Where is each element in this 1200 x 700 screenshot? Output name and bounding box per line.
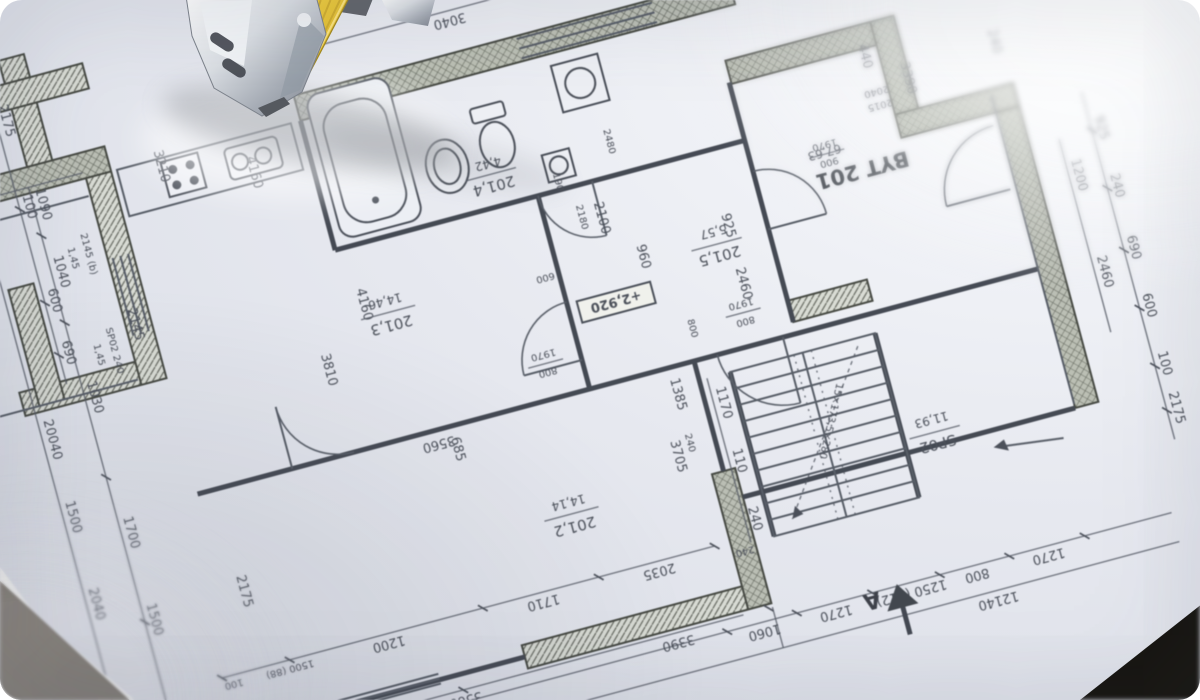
room-area-label: 14,46 — [367, 290, 404, 312]
dimension-label: 960 — [632, 243, 653, 271]
floor-plan: 15×173,5×280 — [0, 0, 1200, 700]
dimension-label: 20040 — [39, 418, 64, 462]
dimension-label: 1170 — [712, 385, 735, 421]
dimension-label: 1200 — [371, 632, 407, 655]
dimension-label: 2035 — [641, 559, 677, 582]
room-label: SP02 — [917, 430, 958, 457]
dimension-label: 3390 — [660, 631, 696, 654]
dimension-label: 1710 — [525, 590, 561, 613]
dimension-label: 1270 — [1031, 544, 1067, 567]
bathtub-icon — [304, 75, 423, 240]
dimension-label: 3040 — [432, 9, 468, 32]
dimension-lines — [0, 0, 1200, 700]
dimension-label: 2100 — [590, 200, 613, 236]
dimension-labels: 12140 1270 800 1250 (812) 1270 1060 3390… — [0, 0, 1200, 700]
room-label: 2145 (b) — [77, 232, 99, 276]
level-marker: +2,920 — [577, 282, 656, 323]
door-size-label: 1970 — [529, 346, 556, 363]
blueprint-photo: 15×173,5×280 — [0, 0, 1200, 700]
door-size-label: 800 — [735, 313, 756, 329]
kitchen-counter — [117, 123, 303, 216]
room-area-label: 11,93 — [913, 408, 950, 430]
dimension-label: 600 — [535, 269, 556, 285]
dimension-label: 1500 — [61, 499, 84, 535]
washing-machine-icon — [551, 54, 610, 113]
room-labels: 201,2 14,14 201,3 14,46 201,4 4,42 201,5… — [329, 51, 985, 588]
dimension-label: 1270 — [818, 601, 854, 624]
room-label: 201,5 — [697, 242, 743, 271]
dimension-label: 1385 — [666, 376, 689, 412]
dimension-label: 2460 — [1093, 254, 1116, 290]
dimension-label: 2175 — [1165, 390, 1188, 426]
dimension-label: 685 — [447, 435, 468, 463]
dimension-label: 240 — [984, 28, 1005, 56]
dimension-label: 100 — [223, 676, 244, 692]
dimension-label: 2175 — [232, 573, 255, 609]
dimension-label: 1200 — [1067, 157, 1090, 193]
room-label: 201,2 — [552, 512, 598, 541]
sink-icon — [420, 135, 475, 198]
dimension-label: 1500 — [143, 602, 166, 638]
room-area-label: 4,42 — [473, 153, 502, 173]
door-size-label: 800 — [537, 364, 558, 380]
room-label: SP02 240 — [103, 326, 126, 375]
dimension-label: 800 — [684, 318, 700, 339]
dimension-label: 1700 — [119, 515, 142, 551]
section-marker-label: A — [860, 585, 883, 614]
dimension-label: 1060 — [747, 620, 783, 643]
dimension-label: 3810 — [317, 352, 340, 388]
dimension-label: 2180 — [573, 204, 590, 231]
room-area-label: 14,14 — [550, 491, 587, 513]
dimension-label: 3210 — [149, 148, 172, 184]
room-label: 1,45 — [90, 343, 106, 367]
room-label: 201,4 — [471, 172, 517, 201]
dimension-label: 2040 — [85, 586, 108, 622]
dimension-label: 12140 — [976, 587, 1020, 612]
dimension-label: 2040 — [863, 83, 890, 100]
dimension-label: 2480 — [600, 128, 617, 155]
window-symbols — [85, 3, 808, 700]
